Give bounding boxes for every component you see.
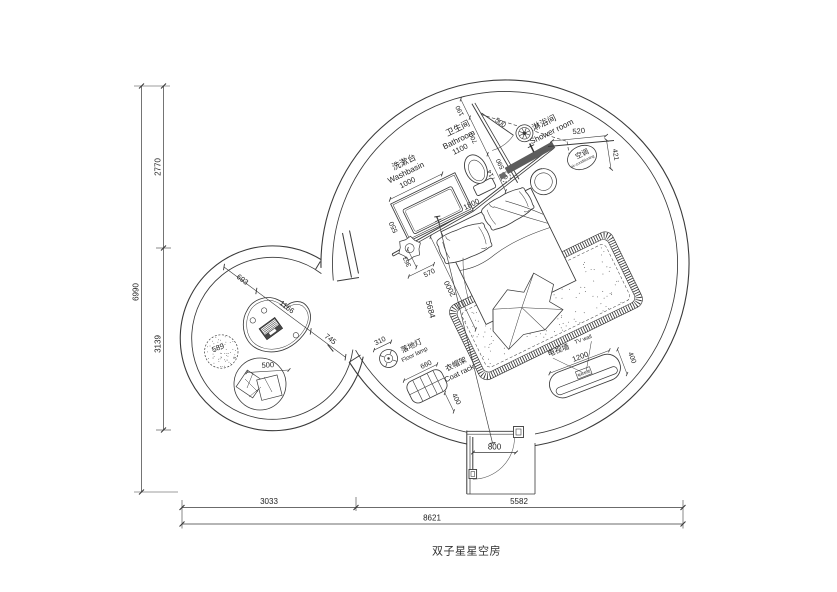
svg-text:8621: 8621 xyxy=(423,514,441,523)
svg-text:6990: 6990 xyxy=(132,283,141,301)
svg-text:2770: 2770 xyxy=(154,158,163,176)
svg-text:双子星星空房: 双子星星空房 xyxy=(432,544,501,558)
svg-text:5582: 5582 xyxy=(510,497,528,506)
svg-text:3033: 3033 xyxy=(260,497,278,506)
svg-text:520: 520 xyxy=(572,126,585,136)
svg-text:500: 500 xyxy=(261,360,274,370)
svg-text:3139: 3139 xyxy=(154,335,163,353)
